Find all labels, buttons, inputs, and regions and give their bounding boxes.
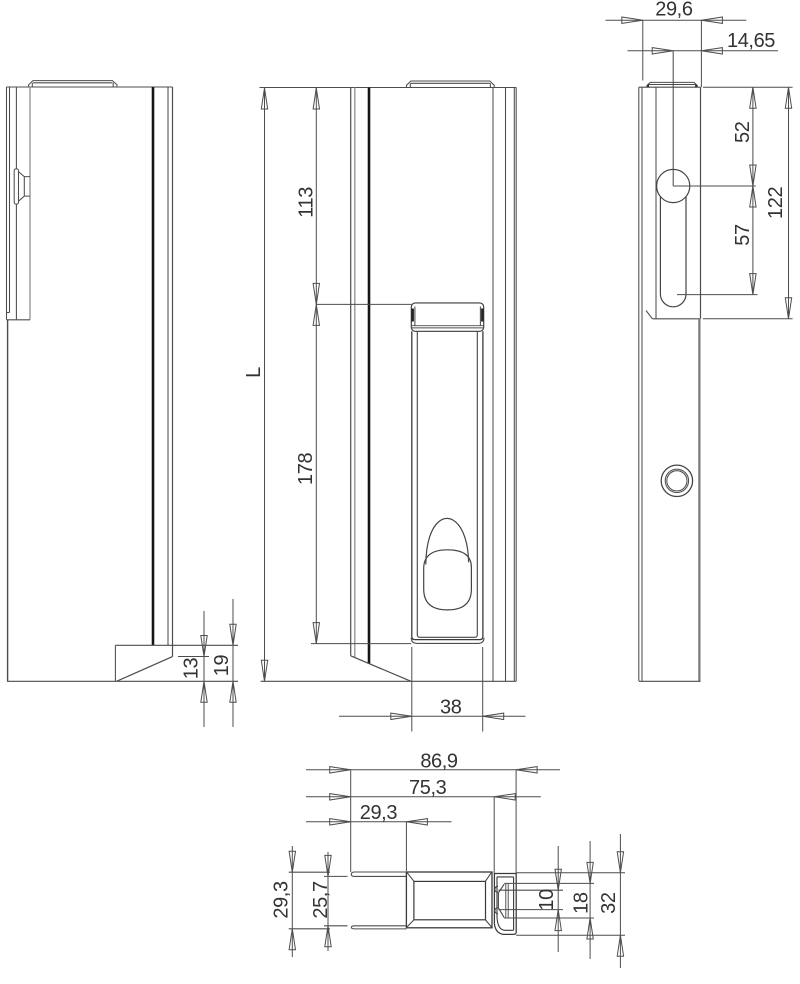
- svg-text:29,3: 29,3: [270, 881, 292, 919]
- svg-text:13: 13: [181, 658, 203, 680]
- svg-text:122: 122: [765, 187, 787, 219]
- svg-text:113: 113: [296, 187, 318, 218]
- svg-text:25,7: 25,7: [310, 881, 332, 919]
- svg-text:57: 57: [732, 224, 754, 246]
- svg-text:178: 178: [295, 453, 317, 485]
- svg-text:L: L: [243, 367, 265, 378]
- svg-text:75,3: 75,3: [409, 777, 447, 799]
- svg-text:19: 19: [211, 655, 233, 677]
- svg-text:18: 18: [571, 892, 593, 914]
- svg-text:38: 38: [440, 697, 462, 719]
- svg-text:86,9: 86,9: [420, 750, 458, 772]
- svg-text:29,3: 29,3: [360, 802, 398, 824]
- svg-text:14,65: 14,65: [727, 30, 775, 52]
- svg-text:52: 52: [732, 121, 754, 143]
- svg-text:29,6: 29,6: [655, 0, 693, 21]
- svg-text:10: 10: [536, 889, 558, 911]
- svg-text:32: 32: [598, 892, 620, 914]
